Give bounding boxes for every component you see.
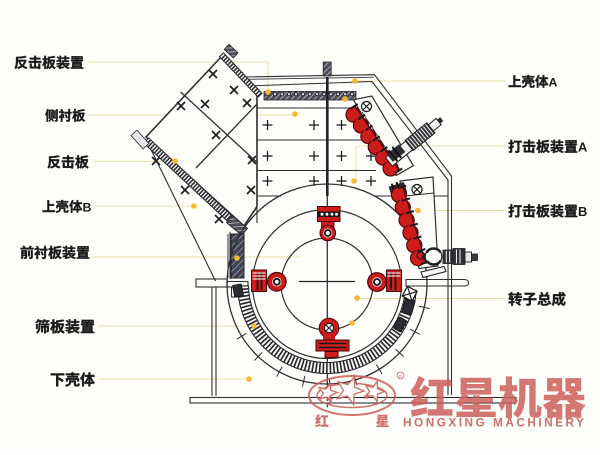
svg-text:B: B — [578, 204, 587, 219]
svg-text:B: B — [83, 201, 92, 215]
svg-text:A: A — [549, 76, 558, 90]
svg-text:HONGXING MACHINERY: HONGXING MACHINERY — [403, 416, 587, 430]
svg-text:A: A — [578, 140, 587, 155]
